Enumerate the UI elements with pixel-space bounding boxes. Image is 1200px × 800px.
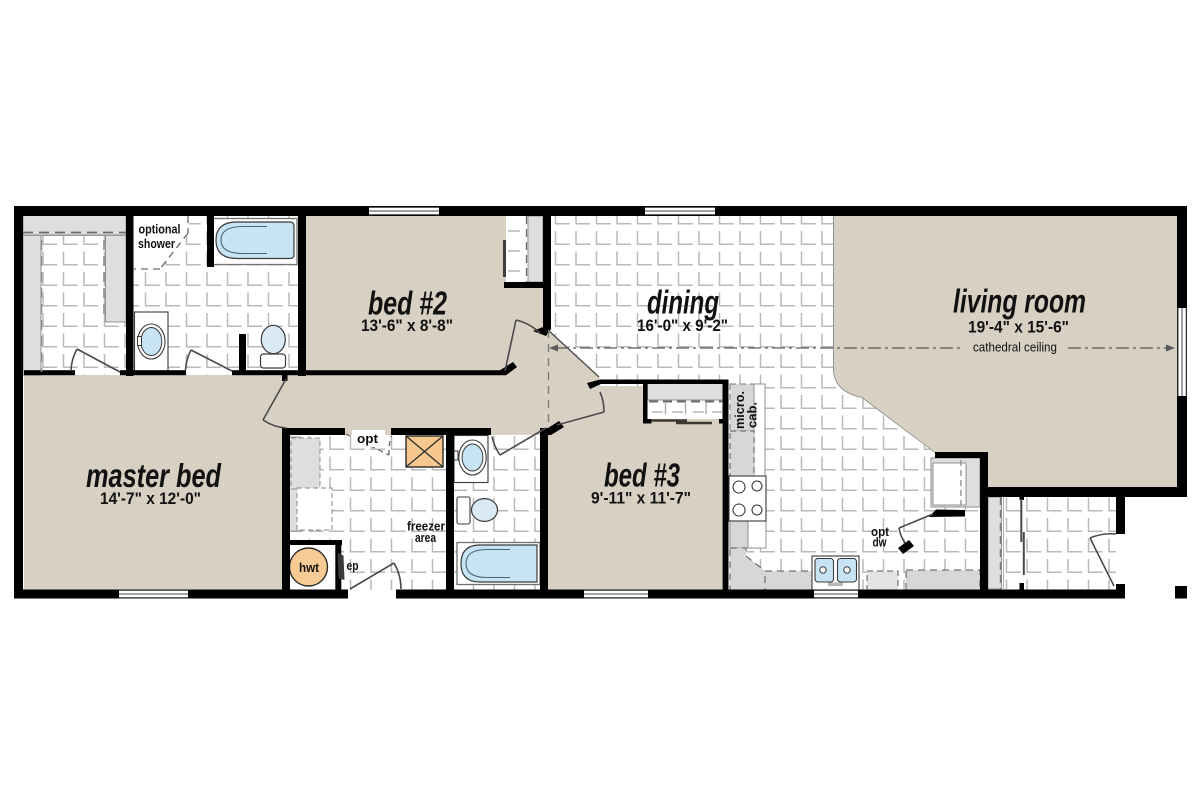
- svg-text:optional: optional: [139, 223, 181, 237]
- svg-text:9'-11" x 11'-7": 9'-11" x 11'-7": [591, 489, 691, 508]
- svg-text:cab.: cab.: [746, 402, 760, 428]
- svg-text:dw: dw: [873, 536, 887, 550]
- svg-text:area: area: [415, 531, 437, 545]
- svg-text:dining: dining: [647, 284, 719, 321]
- svg-text:ep: ep: [347, 559, 359, 573]
- svg-text:living room: living room: [953, 283, 1086, 320]
- svg-text:14'-7" x 12'-0": 14'-7" x 12'-0": [100, 489, 201, 508]
- svg-text:cathedral ceiling: cathedral ceiling: [973, 341, 1057, 355]
- svg-text:hwt: hwt: [299, 561, 320, 575]
- svg-text:19'-4" x 15'-6": 19'-4" x 15'-6": [968, 318, 1069, 337]
- svg-text:16'-0" x 9'-2": 16'-0" x 9'-2": [637, 316, 728, 335]
- svg-text:opt: opt: [357, 432, 379, 446]
- svg-text:shower: shower: [138, 237, 175, 251]
- svg-text:13'-6" x 8'-8": 13'-6" x 8'-8": [361, 316, 453, 335]
